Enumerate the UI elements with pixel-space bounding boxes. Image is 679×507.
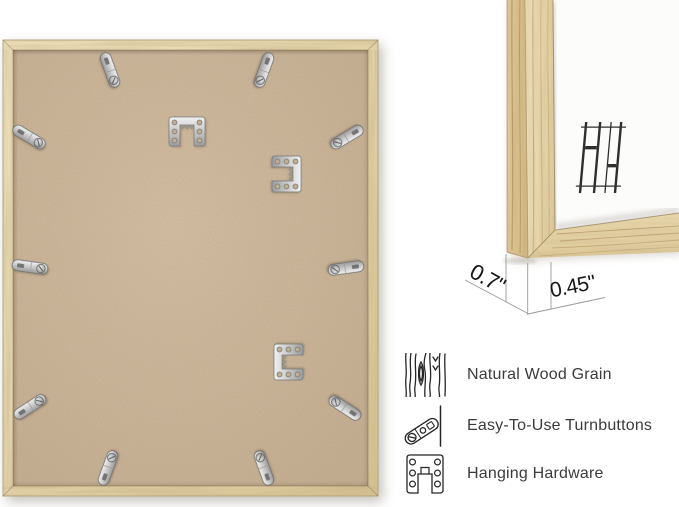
feature-label: Natural Wood Grain xyxy=(467,366,612,384)
feature-hanging-hardware: Hanging Hardware xyxy=(402,451,672,497)
turnbutton-icon xyxy=(402,404,448,448)
depth-dimension-label: 0.7" xyxy=(466,259,510,299)
hanging-hardware-icon xyxy=(402,452,448,496)
frame-back-view xyxy=(3,40,378,496)
feature-wood-grain: Natural Wood Grain xyxy=(402,352,672,398)
product-infographic: 0.7" 0.45" Natural Wood Grain xyxy=(0,0,679,507)
width-dimension-line xyxy=(528,298,605,315)
mat-white-area xyxy=(553,0,679,230)
frame-corner-closeup xyxy=(503,0,679,264)
wood-grain-icon xyxy=(402,353,448,397)
feature-label: Easy-To-Use Turnbuttons xyxy=(467,417,652,435)
feature-turnbuttons: Easy-To-Use Turnbuttons xyxy=(402,403,672,449)
width-dimension-label: 0.45" xyxy=(548,271,597,302)
feature-label: Hanging Hardware xyxy=(467,465,604,483)
